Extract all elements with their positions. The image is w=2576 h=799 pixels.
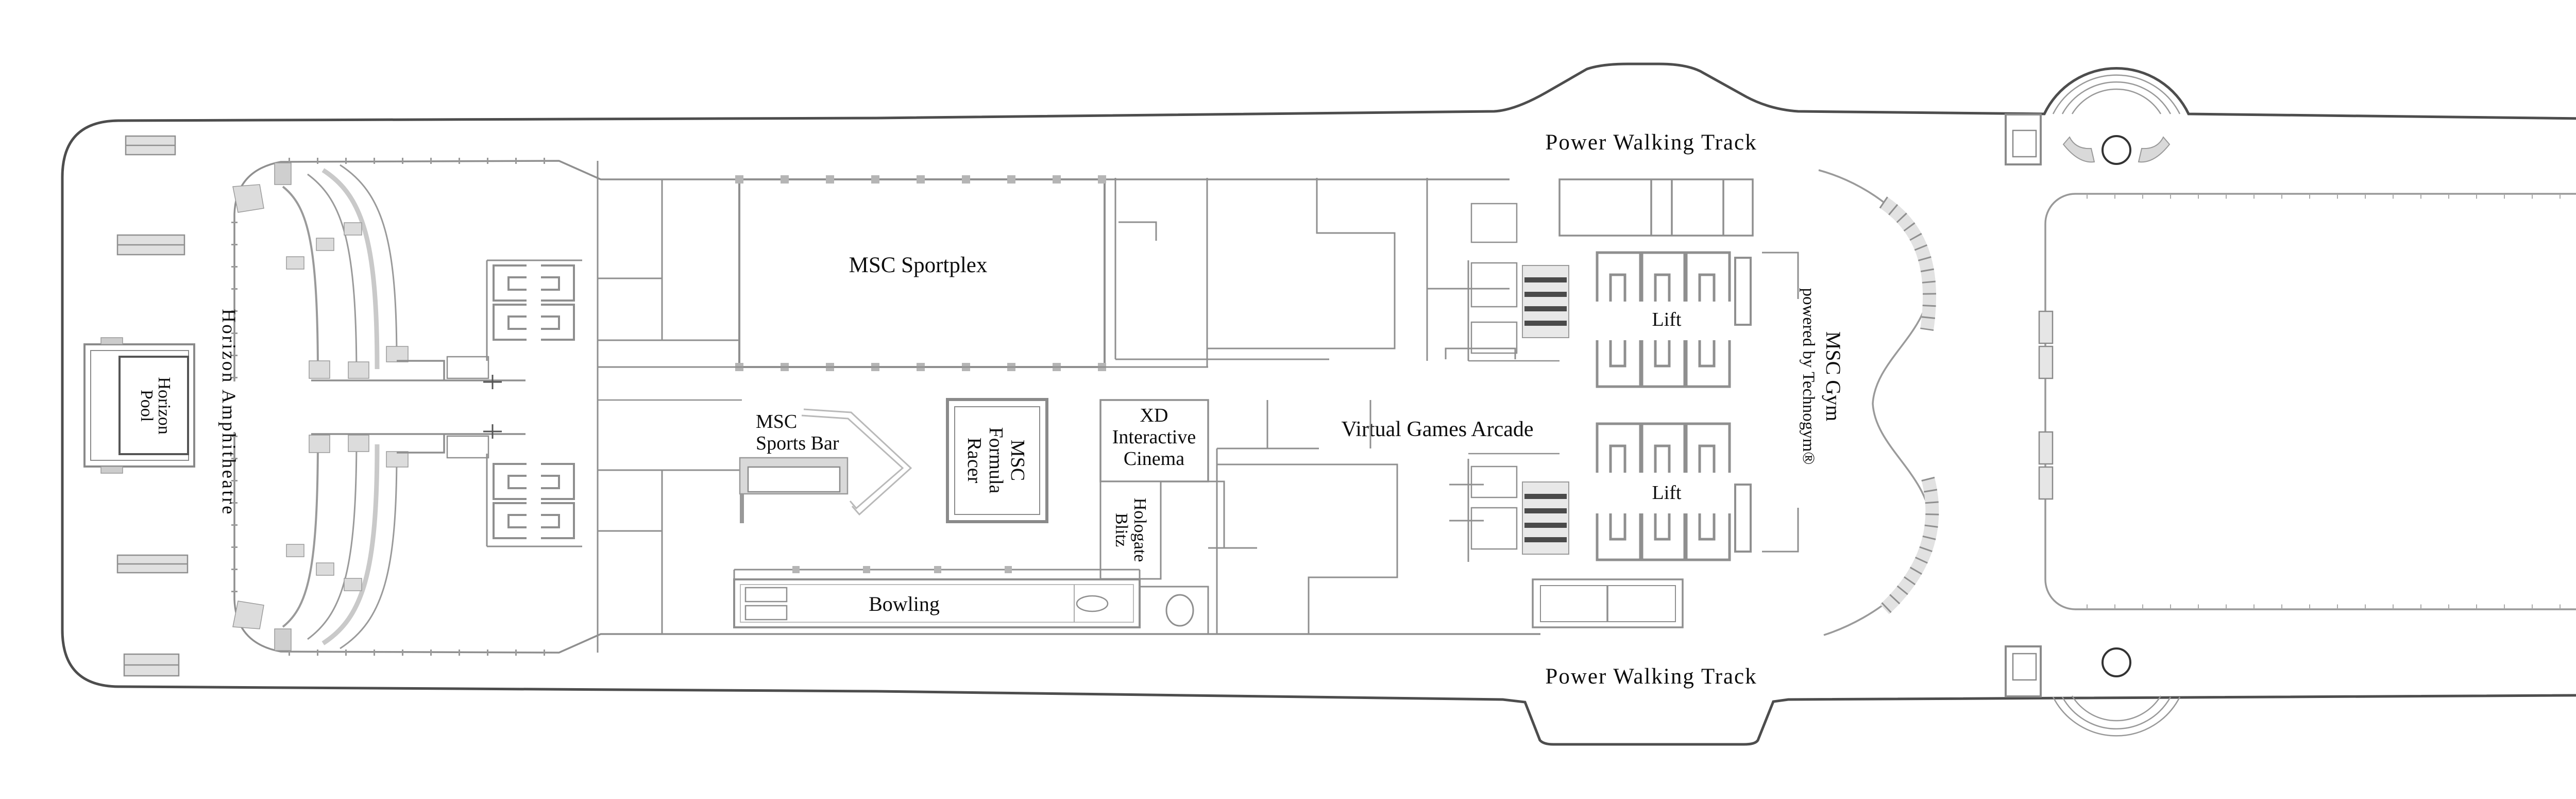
svg-text:powered by Technogym®: powered by Technogym® xyxy=(1799,288,1818,465)
svg-text:Sports Bar: Sports Bar xyxy=(756,432,839,454)
svg-text:Bowling: Bowling xyxy=(869,592,940,615)
svg-text:Lift: Lift xyxy=(1652,482,1682,504)
svg-text:MSC Gym: MSC Gym xyxy=(1822,331,1845,422)
svg-text:XD: XD xyxy=(1140,405,1168,426)
svg-text:Horizon Amphitheatre: Horizon Amphitheatre xyxy=(218,309,239,516)
svg-text:Interactive: Interactive xyxy=(1112,426,1196,448)
svg-text:Lift: Lift xyxy=(1652,309,1682,330)
svg-text:MSC Sportplex: MSC Sportplex xyxy=(849,253,988,277)
svg-text:Power Walking Track: Power Walking Track xyxy=(1545,664,1757,689)
svg-text:Cinema: Cinema xyxy=(1124,448,1184,470)
svg-text:Power Walking Track: Power Walking Track xyxy=(1545,130,1757,155)
svg-text:MSC: MSC xyxy=(756,411,797,432)
